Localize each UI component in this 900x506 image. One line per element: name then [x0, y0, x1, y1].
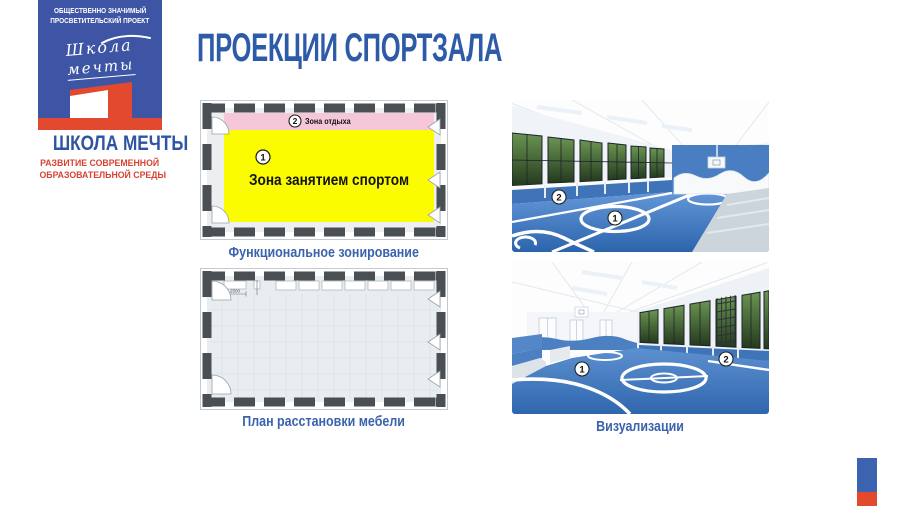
logo-project-type-line2: ПРОСВЕТИТЕЛЬСКИЙ ПРОЕКТ	[50, 17, 149, 27]
rest-zone-label: Зона отдыха	[305, 117, 351, 126]
sport-zone-number: 1	[260, 153, 266, 164]
plan-interior	[207, 276, 441, 402]
corner-accent-red	[857, 492, 877, 506]
marker-1: 1	[608, 211, 622, 225]
gym-visualization-2: 1 2	[512, 262, 769, 414]
brand-name: ШКОЛА МЕЧТЫ	[38, 132, 162, 156]
bench-row	[224, 281, 434, 290]
brand-tagline: РАЗВИТИЕ СОВРЕМЕННОЙ ОБРАЗОВАТЕЛЬНОЙ СРЕ…	[34, 158, 166, 181]
zoning-plan-caption: Функциональное зонирование	[200, 245, 448, 261]
furniture-plan-drawing: 2500	[200, 268, 448, 410]
furniture-plan-caption: План расстановки мебели	[200, 414, 448, 430]
page-title: ПРОЕКЦИИ СПОРТЗАЛА	[197, 26, 674, 71]
marker-1-number: 1	[579, 365, 585, 376]
corner-accent-blue	[857, 458, 877, 492]
sport-zone-label: Зона занятием спортом	[249, 172, 409, 189]
brand-tagline-line1: РАЗВИТИЕ СОВРЕМЕННОЙ	[40, 158, 159, 170]
rest-zone-number: 2	[293, 116, 298, 126]
slide: ОБЩЕСТВЕННО ЗНАЧИМЫЙ ПРОСВЕТИТЕЛЬСКИЙ ПР…	[0, 0, 900, 506]
brand-tagline-line2: ОБРАЗОВАТЕЛЬНОЙ СРЕДЫ	[40, 170, 167, 182]
visualizations-caption: Визуализации	[512, 419, 769, 435]
furniture-plan: 2500	[200, 268, 448, 410]
zoning-plan-caption-text: Функциональное зонирование	[229, 245, 419, 261]
dimension-label: 2500	[230, 289, 241, 294]
sport-zone-marker: 1	[256, 150, 270, 164]
marker-1-number: 1	[612, 214, 618, 225]
visualizations-caption-text: Визуализации	[597, 419, 685, 435]
furniture-plan-caption-text: План расстановки мебели	[243, 414, 406, 430]
zoning-plan-drawing: 2 Зона отдыха 1 Зона занятием спортом	[200, 100, 448, 240]
logo-script-wordmark: Школа мечты	[36, 33, 163, 84]
gym-visualization-1: 2 1	[512, 100, 769, 252]
gym-render-1: 2 1	[512, 100, 769, 252]
marker-2: 2	[552, 190, 566, 204]
marker-1: 1	[575, 362, 589, 376]
page-title-text: ПРОЕКЦИИ СПОРТЗАЛА	[197, 26, 502, 71]
logo-project-type-line1: ОБЩЕСТВЕННО ЗНАЧИМЫЙ	[54, 7, 146, 17]
basketball-backboard	[575, 307, 588, 317]
marker-2-number: 2	[723, 355, 728, 366]
marker-2: 2	[719, 352, 733, 366]
logo: ОБЩЕСТВЕННО ЗНАЧИМЫЙ ПРОСВЕТИТЕЛЬСКИЙ ПР…	[38, 0, 162, 130]
logo-script-line2: мечты	[67, 55, 136, 81]
logo-project-type: ОБЩЕСТВЕННО ЗНАЧИМЫЙ ПРОСВЕТИТЕЛЬСКИЙ ПР…	[38, 7, 162, 26]
zoning-plan: 2 Зона отдыха 1 Зона занятием спортом	[200, 100, 448, 240]
rest-zone-marker: 2	[289, 115, 301, 127]
marker-2-number: 2	[556, 193, 561, 204]
logo-building-icon	[38, 78, 162, 130]
gym-render-2: 1 2	[512, 262, 769, 414]
brand-name-text: ШКОЛА МЕЧТЫ	[53, 132, 188, 156]
